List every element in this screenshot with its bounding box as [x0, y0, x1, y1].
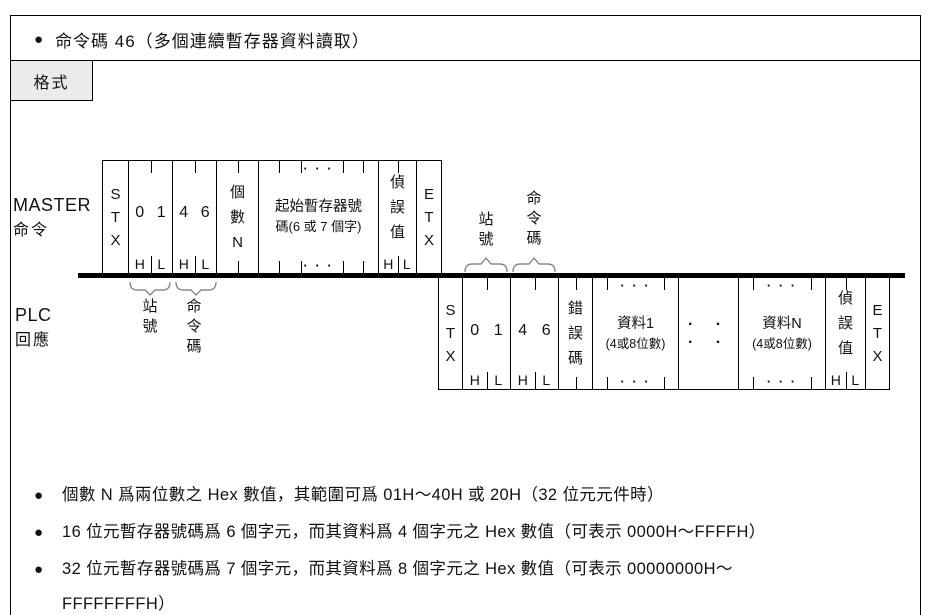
- plc-label-line1: PLC: [15, 302, 52, 328]
- plc-station-h: H: [463, 372, 487, 388]
- plc-errorcode-text: 錯 誤 碼: [568, 296, 583, 371]
- master-commandcode-h: H: [173, 256, 195, 272]
- note-text: 個數 N 爲兩位數之 Hex 數值，其範圍可爲 01H～40H 或 20H（32…: [34, 478, 932, 513]
- plc-checksum-cell: 偵 誤 值 HL: [825, 278, 865, 389]
- plc-digit-4: 4: [511, 322, 535, 340]
- plc-digit-0: 0: [463, 322, 487, 340]
- plc-stx-cell: S T X: [438, 278, 462, 389]
- master-startreg-line1: 起始暫存器號: [275, 197, 362, 217]
- master-checksum-text: 偵 誤 值: [390, 170, 405, 265]
- master-etx-text: E T X: [424, 183, 434, 252]
- note-text: 16 位元暫存器號碼爲 6 個字元，而其資料爲 4 個字元之 Hex 數值（可表…: [34, 515, 932, 550]
- plc-etx-cell: E T X: [865, 278, 890, 389]
- plc-checksum-l: L: [846, 372, 866, 388]
- plc-dataN-cell: · · · 資料N (4或8位數) · · ·: [738, 278, 825, 389]
- plc-checksum-text: 偵 誤 值: [838, 286, 853, 381]
- master-command-label: MASTER 命令: [13, 192, 91, 244]
- master-station-l: L: [151, 256, 173, 272]
- master-checksum-h: H: [379, 256, 398, 272]
- plc-dataN-line2: (4或8位數): [752, 334, 812, 354]
- plc-frame-row: S T X 01 HL 46 HL 錯 誤 碼 · · · 資料1 (4或8位數…: [438, 278, 890, 390]
- master-checksum-cell: 偵 誤 值 HL: [378, 161, 416, 273]
- master-commandcode-underbrace: [175, 281, 217, 297]
- master-startreg-line2: 碼(6 或 7 個字): [276, 217, 362, 237]
- page-border-top: [10, 15, 921, 16]
- master-label-line2: 命令: [13, 218, 91, 244]
- plc-commandcode-l: L: [535, 372, 559, 388]
- title-text: 命令碼 46（多個連續暫存器資料讀取）: [55, 27, 370, 52]
- plc-station-cell: 01 HL: [462, 278, 510, 389]
- manual-page: ● 命令碼 46（多個連續暫存器資料讀取） 格式 MASTER 命令 PLC 回…: [0, 0, 938, 615]
- plc-station-tag: 站 號: [471, 210, 501, 250]
- master-stx-text: S T X: [110, 183, 120, 252]
- plc-checksum-h: H: [826, 372, 846, 388]
- plc-commandcode-cell: 46 HL: [510, 278, 558, 389]
- plc-label-line2: 回應: [15, 328, 52, 354]
- master-station-h: H: [129, 256, 151, 272]
- master-digit-0: 0: [129, 204, 151, 222]
- note-bullet-icon: ●: [34, 552, 43, 587]
- page-title: ● 命令碼 46（多個連續暫存器資料讀取）: [34, 27, 370, 52]
- master-count-cell: 個 數 N: [216, 161, 258, 273]
- master-startreg-dots-bottom: · · ·: [259, 260, 378, 272]
- plc-commandcode-h: H: [511, 372, 535, 388]
- master-commandcode-l: L: [195, 256, 217, 272]
- plc-etx-text: E T X: [872, 299, 882, 368]
- master-label-line1: MASTER: [13, 192, 91, 218]
- master-station-cell: 01 HL: [128, 161, 172, 273]
- format-tab: 格式: [10, 60, 93, 101]
- master-digit-1: 1: [151, 204, 173, 222]
- master-etx-cell: E T X: [416, 161, 442, 273]
- master-commandcode-tag: 命 令 碼: [179, 297, 209, 357]
- plc-digit-1: 1: [487, 322, 511, 340]
- plc-data1-dots-top: · · ·: [593, 280, 678, 292]
- plc-data-ellipsis: · · · ·: [679, 316, 738, 352]
- page-border-left: [10, 15, 11, 615]
- master-count-text: 個 數 N: [230, 180, 245, 255]
- note-16bit-register: ● 16 位元暫存器號碼爲 6 個字元，而其資料爲 4 個字元之 Hex 數值（…: [34, 515, 932, 550]
- plc-data1-line2: (4或8位數): [606, 334, 666, 354]
- master-stx-cell: S T X: [102, 161, 128, 273]
- master-checksum-l: L: [398, 256, 417, 272]
- plc-stx-text: S T X: [445, 299, 455, 368]
- plc-dataN-line1: 資料N: [762, 314, 801, 334]
- plc-commandcode-tag: 命 令 碼: [519, 189, 549, 249]
- note-bullet-icon: ●: [34, 478, 43, 513]
- title-bullet-icon: ●: [34, 31, 44, 48]
- format-tab-label: 格式: [33, 69, 69, 93]
- master-digit-4: 4: [173, 204, 195, 222]
- plc-digit-6: 6: [535, 322, 559, 340]
- master-digit-6: 6: [195, 204, 217, 222]
- plc-errorcode-cell: 錯 誤 碼: [558, 278, 592, 389]
- note-bullet-icon: ●: [34, 515, 43, 550]
- master-commandcode-cell: 46 HL: [172, 161, 216, 273]
- plc-dataN-dots-top: · · ·: [739, 280, 825, 292]
- plc-data1-cell: · · · 資料1 (4或8位數) · · ·: [592, 278, 678, 389]
- note-32bit-register: ● 32 位元暫存器號碼爲 7 個字元，而其資料爲 8 個字元之 Hex 數值（…: [34, 552, 932, 615]
- plc-response-label: PLC 回應: [15, 302, 52, 354]
- title-separator: [10, 60, 921, 61]
- plc-station-overbrace: [464, 257, 508, 273]
- master-station-underbrace: [129, 281, 171, 297]
- master-startreg-dots-top: · · ·: [259, 163, 378, 175]
- master-station-tag: 站 號: [135, 297, 165, 337]
- plc-station-l: L: [487, 372, 511, 388]
- master-frame-row: S T X 01 HL 46 HL 個 數 N · · · 起始暫存器號 碼(6…: [102, 160, 442, 273]
- master-startreg-cell: · · · 起始暫存器號 碼(6 或 7 個字) · · ·: [258, 161, 378, 273]
- note-text: 32 位元暫存器號碼爲 7 個字元，而其資料爲 8 個字元之 Hex 數值（可表…: [34, 552, 932, 615]
- plc-data-ellipsis-cell: · · · ·: [678, 278, 738, 389]
- plc-commandcode-overbrace: [512, 257, 556, 273]
- note-count-range: ● 個數 N 爲兩位數之 Hex 數值，其範圍可爲 01H～40H 或 20H（…: [34, 478, 932, 513]
- plc-data1-line1: 資料1: [617, 314, 654, 334]
